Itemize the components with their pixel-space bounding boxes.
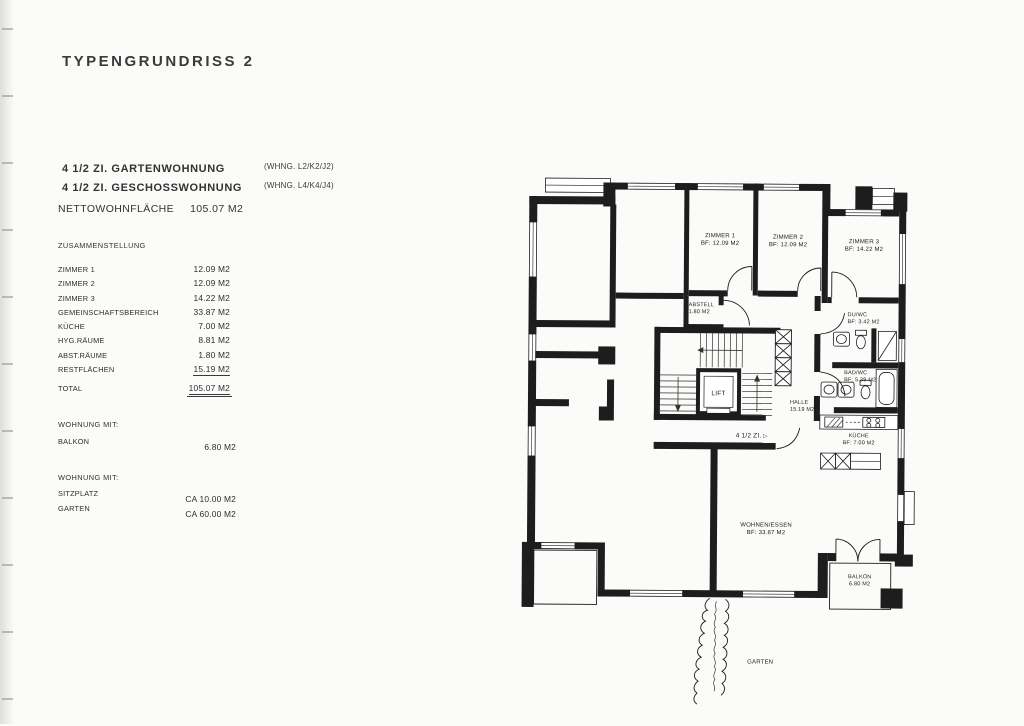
floorplan-drawing: ZIMMER 1BF: 12.09 M2 ZIMMER 2BF: 12.09 M… xyxy=(512,174,928,726)
row-label: HYG.RÄUME xyxy=(58,336,105,345)
row-label: RESTFLÄCHEN xyxy=(58,365,114,374)
sink-icon xyxy=(838,382,854,397)
door-arc xyxy=(722,266,882,561)
row-label: ABST.RÄUME xyxy=(58,351,107,360)
apartment-unit-ref: (WHNG. L2/K2/J2) xyxy=(264,162,334,171)
row-value: 33.87 M2 xyxy=(193,307,230,317)
shower-icon xyxy=(878,331,896,360)
room-label-abstell: ABSTELL1.80 M2 xyxy=(689,302,715,315)
apartment-type-row: 4 1/2 ZI. GARTENWOHNUNG (WHNG. L2/K2/J2) xyxy=(62,159,402,178)
row-label: SITZPLATZ xyxy=(58,489,98,498)
row-label: KÜCHE xyxy=(58,322,85,331)
table-row: ZIMMER 314.22 M2 xyxy=(58,294,230,308)
scan-edge-marks xyxy=(2,28,13,708)
row-value: 1.80 M2 xyxy=(198,350,230,360)
row-value: 14.22 M2 xyxy=(193,293,230,303)
room-label-zimmer1: ZIMMER 1BF: 12.09 M2 xyxy=(701,233,740,247)
apartment-type-row: 4 1/2 ZI. GESCHOSSWOHNUNG (WHNG. L4/K4/J… xyxy=(62,178,402,197)
room-label-kueche: KÜCHEBF: 7.00 M2 xyxy=(843,432,875,446)
room-label-balkon: BALKON6.80 M2 xyxy=(848,574,872,587)
room-label-garten: GARTEN xyxy=(747,659,773,665)
row-label: ZIMMER 1 xyxy=(58,265,95,274)
toilet-icon xyxy=(855,330,866,349)
row-value: 7.00 M2 xyxy=(198,321,230,331)
row-value: CA 60.00 M2 xyxy=(185,509,236,519)
room-label-zimmer2: ZIMMER 2BF: 12.09 M2 xyxy=(769,235,808,249)
extras-title: WOHNUNG MIT: xyxy=(58,473,236,482)
table-row: ZIMMER 212.09 M2 xyxy=(58,279,230,293)
unit-label: 4 1/2 ZI.▷ xyxy=(736,432,769,439)
room-label-badwc: BAD/WCBF: 5.39 M2 xyxy=(844,370,876,383)
row-label: BALKON xyxy=(58,437,89,446)
net-area-value: 105.07 M2 xyxy=(190,203,243,215)
wohnung-mit-balkon-block: WOHNUNG MIT: BALKON6.80 M2 xyxy=(58,420,236,452)
room-label-wohnen: WOHNEN/ESSENBF: 33.87 M2 xyxy=(740,522,792,536)
page-title: TYPENGRUNDRISS 2 xyxy=(62,53,255,70)
row-value: 8.81 M2 xyxy=(198,335,230,345)
row-value: 6.80 M2 xyxy=(204,442,236,452)
row-label: GEMEINSCHAFTSBEREICH xyxy=(58,308,159,317)
row-value: CA 10.00 M2 xyxy=(185,494,236,504)
total-value: 105.07 M2 xyxy=(189,383,230,395)
apartment-type-list: 4 1/2 ZI. GARTENWOHNUNG (WHNG. L2/K2/J2)… xyxy=(62,159,402,196)
extras-row: GARTENCA 60.00 M2 xyxy=(58,504,236,519)
kitchen-counter-icon xyxy=(820,415,898,430)
net-area-line: NETTOWOHNFLÄCHE105.07 M2 xyxy=(58,203,243,215)
table-row: HYG.RÄUME8.81 M2 xyxy=(58,336,230,350)
row-label: GARTEN xyxy=(58,504,90,513)
apartment-unit-ref: (WHNG. L4/K4/J4) xyxy=(264,181,334,190)
table-row: KÜCHE7.00 M2 xyxy=(58,322,230,336)
table-row: ABST.RÄUME1.80 M2 xyxy=(58,351,230,365)
extras-row: SITZPLATZCA 10.00 M2 xyxy=(58,489,236,504)
kitchen-cabinet-icon xyxy=(820,453,880,469)
bathtub-icon xyxy=(876,369,897,407)
sink-icon xyxy=(821,382,837,397)
apartment-type-label: 4 1/2 ZI. GESCHOSSWOHNUNG xyxy=(62,182,242,194)
garden-hedge-squiggle xyxy=(694,598,729,704)
row-value: 12.09 M2 xyxy=(193,278,230,288)
extras-title: WOHNUNG MIT: xyxy=(58,420,236,429)
total-label: TOTAL xyxy=(58,384,82,393)
row-value: 12.09 M2 xyxy=(193,264,230,274)
summary-table-title: ZUSAMMENSTELLUNG xyxy=(58,241,146,250)
table-total-row: TOTAL105.07 M2 xyxy=(58,384,230,400)
row-label: ZIMMER 3 xyxy=(58,294,95,303)
sink-icon xyxy=(833,332,849,346)
shaft-icon xyxy=(775,330,791,386)
row-value: 15.19 M2 xyxy=(193,364,230,376)
room-label-halle: HALLE15.19 M2 xyxy=(790,400,815,413)
table-row: GEMEINSCHAFTSBEREICH33.87 M2 xyxy=(58,308,230,322)
table-row: ZIMMER 112.09 M2 xyxy=(58,265,230,279)
row-label: ZIMMER 2 xyxy=(58,279,95,288)
scanned-floorplan-page: { "document": { "title": "TYPENGRUNDRISS… xyxy=(0,0,1024,724)
room-label-lift: LIFT xyxy=(711,390,725,397)
room-label-duwc: DU/WCBF: 3.42 M2 xyxy=(847,312,879,325)
room-label-zimmer3: ZIMMER 3BF: 14.22 M2 xyxy=(845,239,884,253)
wohnung-mit-garten-block: WOHNUNG MIT: SITZPLATZCA 10.00 M2 GARTEN… xyxy=(58,473,236,519)
unit-arrow-icon: ▷ xyxy=(763,434,768,440)
table-row: RESTFLÄCHEN15.19 M2 xyxy=(58,365,230,379)
apartment-type-label: 4 1/2 ZI. GARTENWOHNUNG xyxy=(62,163,225,175)
fixtures xyxy=(819,330,898,470)
extras-row: BALKON6.80 M2 xyxy=(58,437,236,452)
area-summary-table: ZIMMER 112.09 M2 ZIMMER 212.09 M2 ZIMMER… xyxy=(58,265,230,400)
net-area-label: NETTOWOHNFLÄCHE xyxy=(58,203,174,215)
